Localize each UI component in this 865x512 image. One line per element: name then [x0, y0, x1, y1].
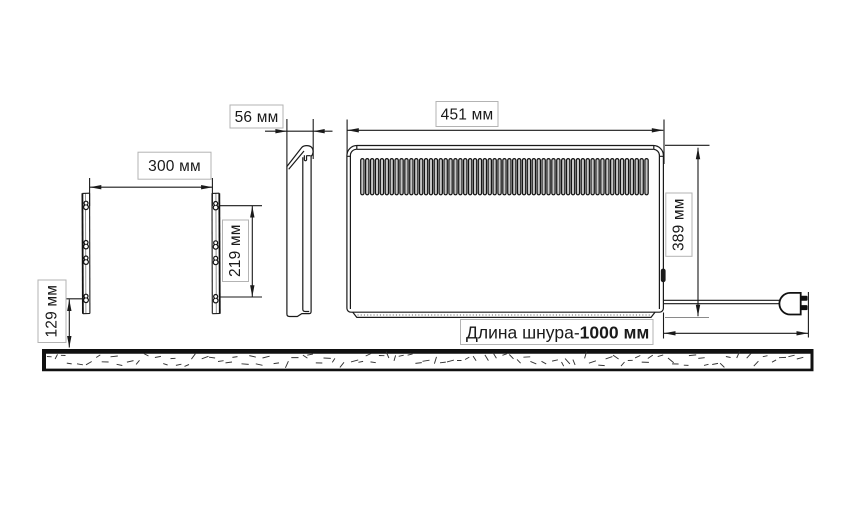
svg-text:Длина шнура-1000 мм: Длина шнура-1000 мм	[466, 323, 649, 343]
svg-text:219 мм: 219 мм	[227, 224, 244, 277]
svg-text:389 мм: 389 мм	[671, 198, 688, 251]
svg-text:300 мм: 300 мм	[148, 158, 201, 175]
svg-text:451 мм: 451 мм	[441, 107, 494, 124]
svg-text:129 мм: 129 мм	[44, 285, 61, 338]
svg-text:56 мм: 56 мм	[235, 109, 279, 126]
